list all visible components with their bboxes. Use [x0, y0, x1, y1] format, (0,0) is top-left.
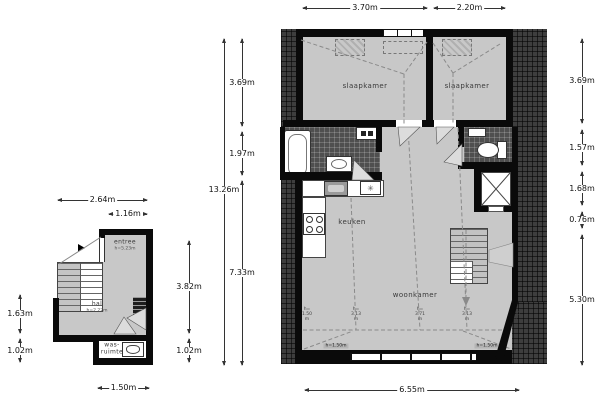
dim-lp-left-upper: 1.63m [15, 294, 25, 334]
floor-plan-canvas: entree h=5.23m hal h=2.22m was- ruimte 2… [0, 0, 600, 400]
window-bottom [350, 353, 476, 361]
skylight [383, 41, 423, 54]
dim-value: 1.63m [5, 310, 35, 318]
room-height-entree: h=5.23m [114, 247, 135, 252]
dim-mp-left-1: 3.69m [237, 38, 247, 127]
dim-lp-bottom: 1.50m [97, 383, 150, 393]
dim-mp-right-2: 1.57m [577, 129, 587, 166]
burner-icon [316, 216, 323, 223]
dim-value: 3.82m [174, 283, 204, 291]
dim-lp-left-lower: 1.02m [15, 338, 25, 363]
washing-machine [122, 342, 144, 357]
dim-value: 0.76m [567, 216, 597, 224]
tap-icon [368, 131, 373, 136]
kitchen-sink [324, 181, 348, 196]
h-unit: m [513, 317, 517, 322]
toilet-bowl [477, 142, 499, 158]
ceiling-height-label: h= 1.50 m [508, 308, 522, 322]
elevator-car [481, 172, 511, 206]
ceiling-height-label: h= 3.71 m [413, 308, 427, 322]
dim-value: 1.68m [567, 185, 597, 193]
dim-value: 1.16m [113, 210, 143, 218]
dim-value: 7.33m [227, 269, 257, 277]
h-unit: m [305, 317, 309, 322]
ceiling-height-label: h= 3.13 m [460, 308, 474, 322]
dim-value: 1.97m [227, 150, 257, 158]
ceiling-height-label: h= 1.50 m [300, 308, 314, 322]
dim-lp-top-total: 2.64m [57, 195, 148, 205]
toilet-basin [468, 128, 486, 137]
extractor-icon: ✳ [367, 184, 374, 193]
wall [458, 127, 464, 147]
cooktop [303, 213, 325, 235]
wall [280, 172, 382, 180]
dim-mp-left-2: 1.97m [237, 131, 247, 176]
room-label-entree: entree [114, 239, 136, 246]
extractor-unit: ✳ [360, 181, 381, 195]
dim-line [224, 39, 225, 365]
wall [146, 229, 153, 365]
dim-mp-left-total: 13.26m [219, 38, 229, 366]
washbasin-bowl [331, 159, 347, 169]
dim-value: 1.50m [109, 384, 139, 392]
elevator-door-opening [488, 206, 504, 212]
burner-icon [316, 226, 323, 233]
skylight [335, 39, 365, 56]
stairs-lower-flight [451, 261, 473, 283]
bedroom2-door-opening [434, 120, 456, 127]
dim-mp-right-4: 0.76m [577, 211, 587, 229]
dim-value: 5.30m [567, 296, 597, 304]
room-label-wasruimte-1: was- [104, 342, 119, 349]
wall [99, 229, 153, 235]
entree-door-opening [99, 238, 105, 262]
kitchen-sink-bowl [328, 185, 344, 192]
bathtub-inner [288, 134, 307, 176]
meter-cabinet [133, 297, 146, 319]
dim-mp-right-3: 1.68m [577, 171, 587, 206]
dim-mp-left-3: 7.33m [237, 180, 247, 366]
room-label-hal: hal [92, 301, 102, 308]
bedroom1-door-opening [396, 120, 422, 127]
entrance-arrow-icon [78, 244, 85, 252]
dim-value: 3.69m [227, 79, 257, 87]
stairs-upper-flight [58, 263, 81, 311]
skylight [442, 39, 472, 56]
dim-mp-top-left: 3.70m [302, 3, 428, 13]
wall [295, 180, 302, 352]
wall [506, 29, 513, 127]
ceiling-height-box: h=1.50m [474, 344, 499, 349]
dim-value: 6.55m [397, 386, 427, 394]
h-unit: m [465, 317, 469, 322]
room-height-hal: h=2.22m [86, 309, 107, 314]
dim-lp-right-lower: 1.02m [184, 338, 194, 363]
h-unit: m [354, 317, 358, 322]
burner-icon [306, 216, 313, 223]
dim-mp-right-1: 3.69m [577, 38, 587, 124]
wall [99, 229, 105, 238]
wall [296, 29, 303, 127]
roof-hatch [507, 29, 547, 127]
washbasin [326, 156, 352, 172]
bathroom-counter [356, 127, 378, 140]
dim-value: 2.64m [88, 196, 118, 204]
dim-lp-top-partial: 1.16m [108, 209, 148, 219]
room-label-wasruimte-2: ruimte [101, 349, 123, 356]
dim-mp-right-5: 5.30m [577, 234, 587, 366]
stairs-main [450, 228, 488, 284]
h-unit: m [418, 317, 422, 322]
window-top [383, 29, 423, 37]
dim-mp-bottom: 6.55m [304, 385, 520, 395]
ceiling-height-label: h= 3.13 m [349, 308, 363, 322]
dim-value: 1.57m [567, 144, 597, 152]
dim-value: 1.02m [5, 347, 35, 355]
room-label-bedroom1: slaapkamer [343, 82, 388, 90]
room-label-bedroom2: slaapkamer [445, 82, 490, 90]
ceiling-height-box: h=1.50m [323, 344, 348, 349]
wall [376, 127, 382, 152]
room-label-kitchen: keuken [338, 218, 366, 226]
burner-icon [306, 226, 313, 233]
wall [426, 29, 433, 127]
wall [512, 127, 518, 302]
wall [93, 358, 153, 365]
room-label-living: woonkamer [393, 291, 438, 299]
wall [99, 335, 146, 341]
dim-mp-top-right: 2.20m [433, 3, 506, 13]
washing-machine-drum [126, 345, 140, 354]
dim-lp-right-upper: 3.82m [184, 240, 194, 334]
tap-icon [361, 131, 366, 136]
roof-hatch [281, 178, 296, 364]
dim-value: 3.70m [350, 4, 380, 12]
dim-value: 3.69m [567, 77, 597, 85]
dim-value: 2.20m [455, 4, 485, 12]
dim-value: 1.02m [174, 347, 204, 355]
